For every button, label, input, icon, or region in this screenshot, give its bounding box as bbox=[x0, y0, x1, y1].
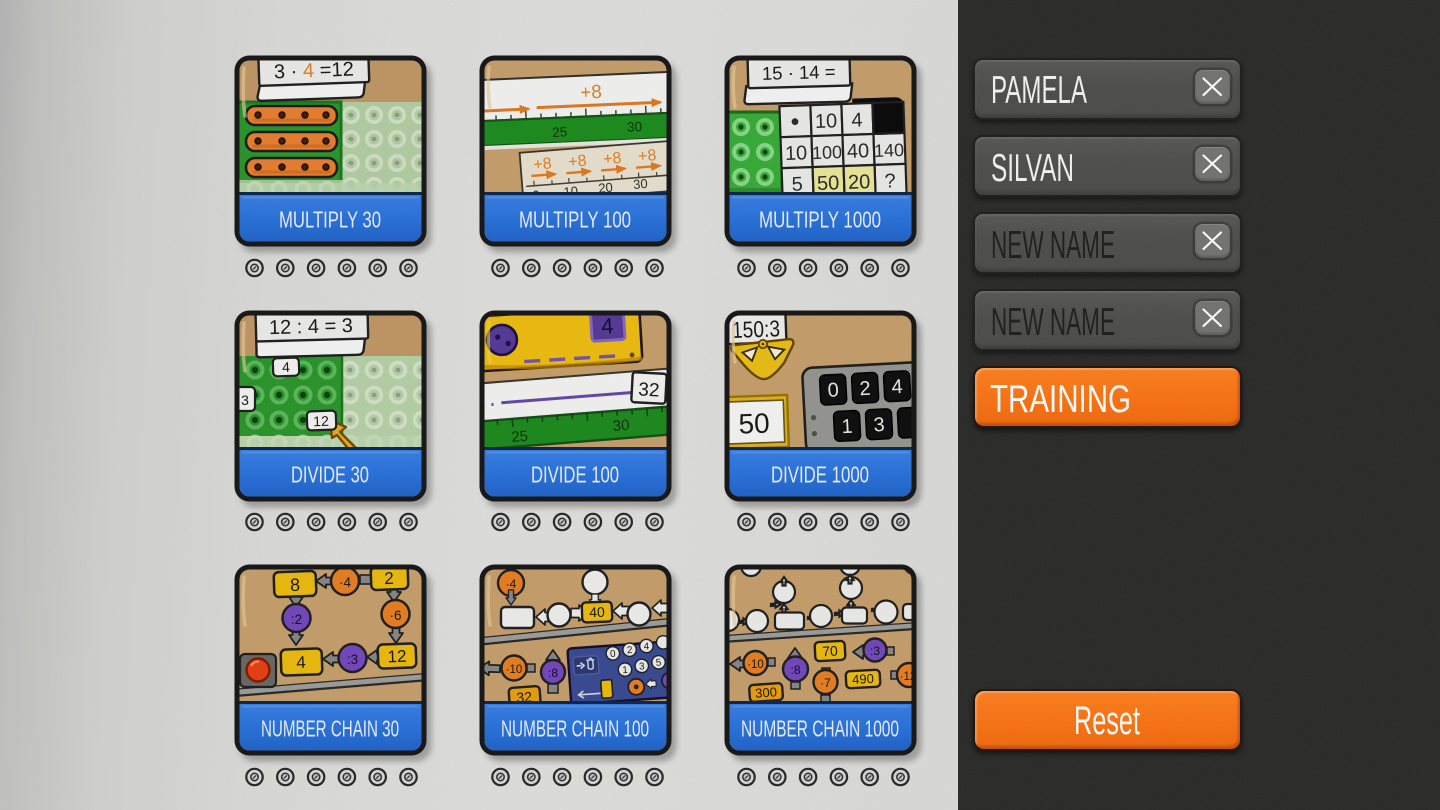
svg-text:·7: ·7 bbox=[820, 676, 831, 690]
svg-text:4: 4 bbox=[851, 109, 863, 131]
svg-text:3: 3 bbox=[241, 392, 249, 408]
svg-text:30: 30 bbox=[612, 417, 630, 435]
svg-text:NUMBER CHAIN 100: NUMBER CHAIN 100 bbox=[501, 716, 649, 742]
svg-text:70: 70 bbox=[822, 643, 839, 660]
svg-text:Reset: Reset bbox=[1074, 699, 1140, 743]
svg-text:20: 20 bbox=[848, 171, 871, 194]
svg-text:4: 4 bbox=[891, 376, 903, 399]
svg-text:40: 40 bbox=[589, 604, 605, 621]
svg-text:25: 25 bbox=[511, 428, 529, 446]
svg-text:NUMBER CHAIN 30: NUMBER CHAIN 30 bbox=[261, 716, 399, 742]
svg-text:50: 50 bbox=[738, 408, 770, 440]
svg-text:150:3: 150:3 bbox=[732, 315, 781, 343]
svg-text:50: 50 bbox=[817, 172, 840, 195]
svg-text:DIVIDE 1000: DIVIDE 1000 bbox=[771, 462, 869, 488]
svg-text:12: 12 bbox=[313, 413, 329, 430]
svg-text:+8: +8 bbox=[580, 82, 603, 104]
svg-text::3: :3 bbox=[347, 652, 358, 667]
svg-text:300: 300 bbox=[755, 684, 778, 700]
svg-text:+8: +8 bbox=[637, 147, 657, 165]
svg-text:MULTIPLY 100: MULTIPLY 100 bbox=[519, 207, 631, 233]
svg-text:MULTIPLY 30: MULTIPLY 30 bbox=[279, 207, 381, 233]
svg-text:10: 10 bbox=[785, 142, 808, 165]
svg-text:NEW NAME: NEW NAME bbox=[991, 224, 1115, 267]
svg-text:12 : 4 = 3: 12 : 4 = 3 bbox=[269, 315, 354, 339]
svg-text:·10: ·10 bbox=[747, 659, 764, 671]
svg-text:·6: ·6 bbox=[389, 608, 401, 623]
svg-text::8: :8 bbox=[548, 666, 558, 680]
svg-text:?: ? bbox=[884, 170, 896, 192]
svg-text:·4: ·4 bbox=[506, 577, 517, 591]
svg-text:DIVIDE 30: DIVIDE 30 bbox=[291, 462, 369, 488]
svg-text:4: 4 bbox=[296, 653, 306, 672]
svg-text:3 · 4 =12: 3 · 4 =12 bbox=[273, 59, 354, 84]
svg-text:TRAINING: TRAINING bbox=[990, 378, 1131, 421]
svg-text:40: 40 bbox=[847, 140, 870, 163]
svg-text:100: 100 bbox=[812, 142, 843, 163]
svg-text:2: 2 bbox=[859, 378, 871, 401]
svg-text:30: 30 bbox=[633, 176, 649, 192]
svg-text:1: 1 bbox=[841, 416, 853, 439]
svg-text:NEW NAME: NEW NAME bbox=[991, 301, 1115, 344]
svg-text:0: 0 bbox=[827, 379, 839, 402]
svg-text:25: 25 bbox=[552, 124, 568, 140]
svg-text:8: 8 bbox=[290, 575, 301, 595]
svg-text:4: 4 bbox=[282, 359, 291, 375]
svg-text:12: 12 bbox=[387, 647, 407, 667]
svg-text:+8: +8 bbox=[533, 155, 553, 173]
svg-text:140: 140 bbox=[874, 140, 905, 161]
svg-text:PAMELA: PAMELA bbox=[991, 69, 1087, 112]
svg-text::8: :8 bbox=[790, 663, 800, 677]
svg-text:MULTIPLY 1000: MULTIPLY 1000 bbox=[759, 207, 881, 233]
svg-text:3: 3 bbox=[873, 414, 885, 437]
svg-text:DIVIDE 100: DIVIDE 100 bbox=[531, 462, 619, 488]
svg-text:+8: +8 bbox=[568, 153, 588, 171]
svg-text:+8: +8 bbox=[603, 150, 623, 168]
svg-text:2: 2 bbox=[384, 569, 394, 588]
svg-text:·4: ·4 bbox=[339, 575, 351, 590]
svg-text:32: 32 bbox=[638, 379, 660, 401]
svg-text:·10: ·10 bbox=[506, 664, 523, 676]
svg-text:10: 10 bbox=[814, 110, 837, 133]
svg-text:30: 30 bbox=[627, 119, 643, 135]
svg-text:4: 4 bbox=[600, 313, 614, 339]
svg-text:15 · 14 =: 15 · 14 = bbox=[762, 61, 836, 84]
svg-text:490: 490 bbox=[852, 671, 874, 687]
svg-text:SILVAN: SILVAN bbox=[991, 147, 1074, 190]
svg-text::2: :2 bbox=[291, 612, 302, 627]
svg-text:NUMBER CHAIN 1000: NUMBER CHAIN 1000 bbox=[741, 716, 899, 742]
svg-text::3: :3 bbox=[870, 644, 880, 658]
